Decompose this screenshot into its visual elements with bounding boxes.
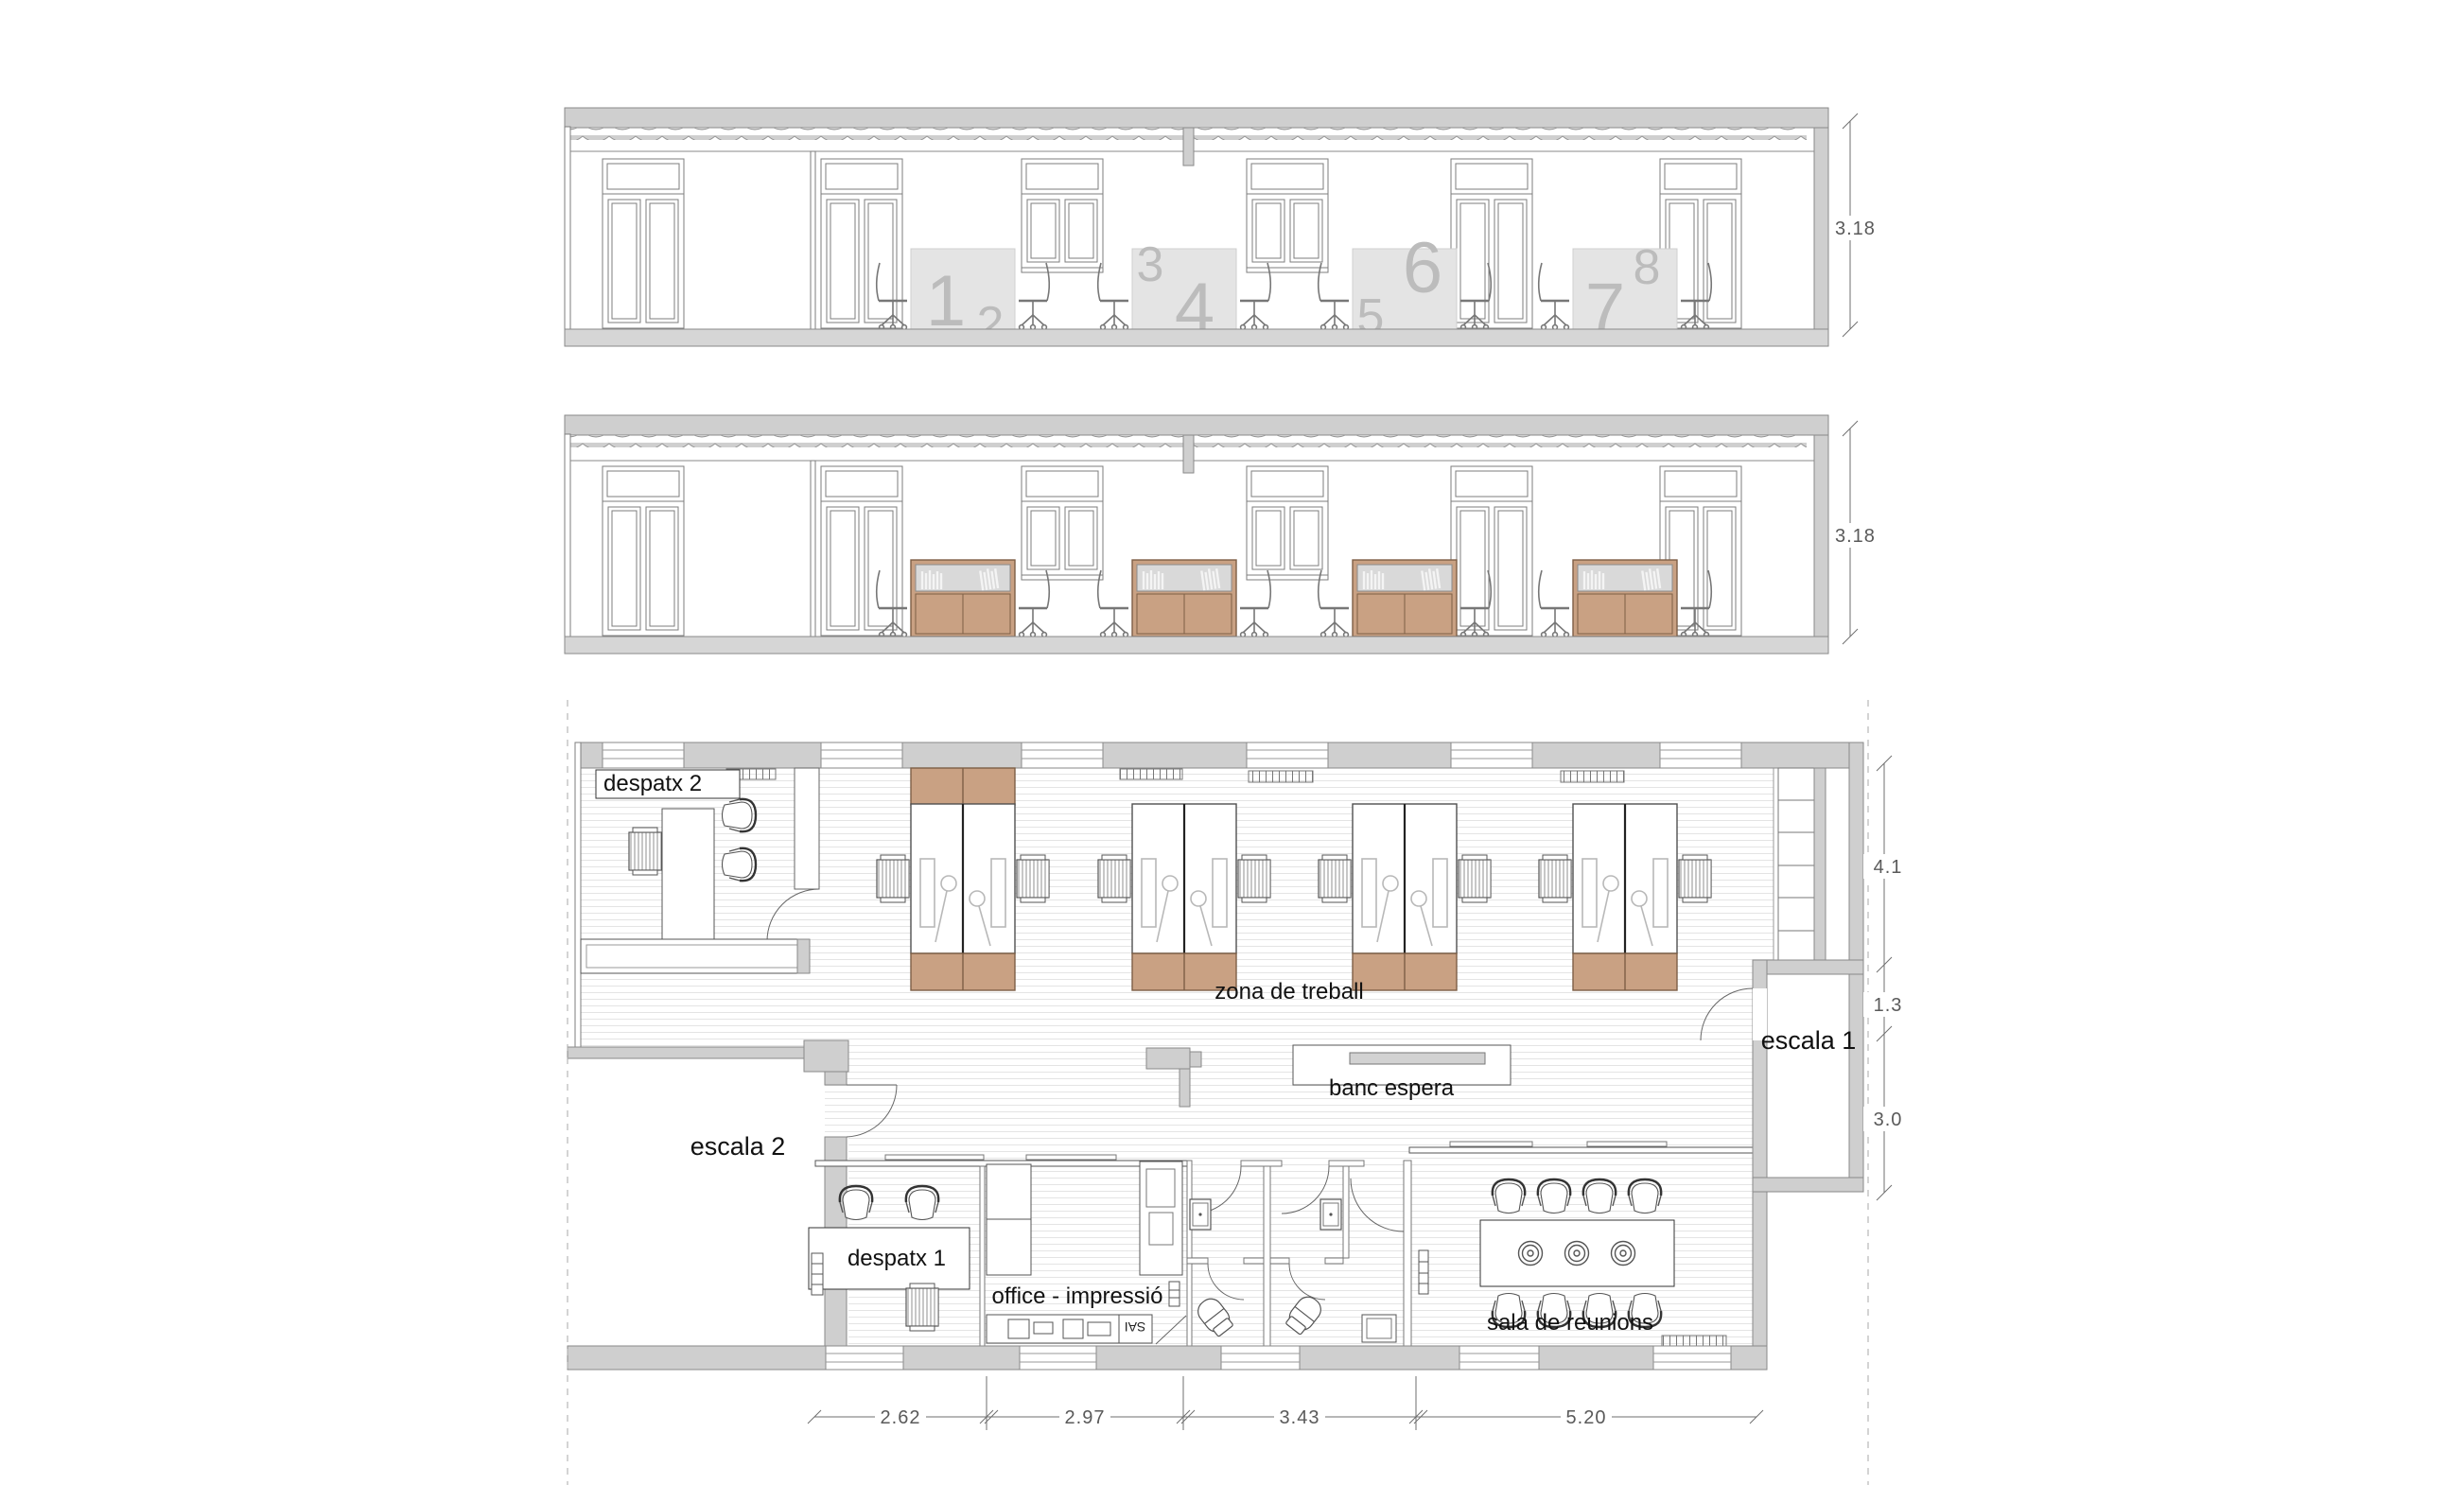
section-a-partition [811,151,815,329]
desk-number-6: 6 [1403,228,1442,308]
dim-2-62: 2.62 [881,1407,921,1428]
meeting-table [1480,1220,1674,1286]
label-escala-1: escala 1 [1761,1026,1857,1055]
corridor-walls [568,1040,848,1346]
section-a-height-dim: 3.18 [1835,218,1876,239]
dim-4-1: 4.1 [1874,857,1903,878]
dim-3-0: 3.0 [1874,1109,1903,1130]
dim-1-3: 1.3 [1874,995,1903,1016]
section-a-floor-slab [565,329,1828,346]
despatx2-task-chair [629,828,661,875]
dim-3-43: 3.43 [1280,1407,1320,1428]
label-sala-de-reunions: sala de reunions [1487,1310,1653,1336]
section-b-floor-slab [565,637,1828,654]
desk-number-8: 8 [1634,240,1661,295]
section-a: 1 2 3 4 5 6 7 8 3.18 [565,108,1884,352]
section-b-right-wall [1814,435,1828,637]
architectural-drawing-sheet: 1 2 3 4 5 6 7 8 3.18 [0,0,2464,1502]
label-sai: SAI [1125,1319,1146,1335]
section-b-left-wall [565,434,570,654]
plan-bottom-dimensions: 2.62 2.97 3.43 5.20 [808,1376,1763,1430]
label-despatx-1: despatx 1 [848,1246,946,1271]
section-b-beam-drop [1183,435,1194,473]
despatx2-desk [662,809,714,946]
despatx1-task-chair [906,1284,938,1331]
dim-5-20: 5.20 [1566,1407,1607,1428]
section-a-left-wall [565,127,570,346]
right-shelving [1778,768,1826,963]
floor-plan: despatx 2 zona de treball [568,700,1909,1485]
section-b-partition [811,461,815,637]
section-b: 3.18 [565,415,1884,654]
label-zona-de-treball: zona de treball [1215,979,1363,1004]
office-plan-and-sections-svg: 1 2 3 4 5 6 7 8 3.18 [0,0,2464,1502]
section-a-ceiling-band [565,108,1828,128]
dim-2-97: 2.97 [1065,1407,1106,1428]
label-banc-espera: banc espera [1329,1075,1455,1101]
section-a-beam-drop [1183,128,1194,166]
section-a-right-wall [1814,128,1828,329]
section-b-ceiling-band [565,415,1828,435]
label-office-impressio: office - impressió [992,1284,1163,1309]
despatx2-pilaster [795,768,819,889]
desk-number-3: 3 [1137,237,1164,292]
plan-right-wall-upper [1849,742,1863,974]
plan-top-wall [575,742,1863,768]
plan-bottom-wall [568,1346,1767,1370]
plan-left-wall [575,742,581,1058]
label-despatx-2: despatx 2 [603,771,702,796]
label-escala-2: escala 2 [690,1132,786,1161]
sala-glass-wall [1409,1147,1753,1153]
despatx1-right-wall [980,1166,985,1346]
hall-wardrobe [581,939,810,973]
section-b-height-dim: 3.18 [1835,526,1876,547]
plan-right-dimensions: 4.1 1.3 3.0 [1863,756,1909,1200]
